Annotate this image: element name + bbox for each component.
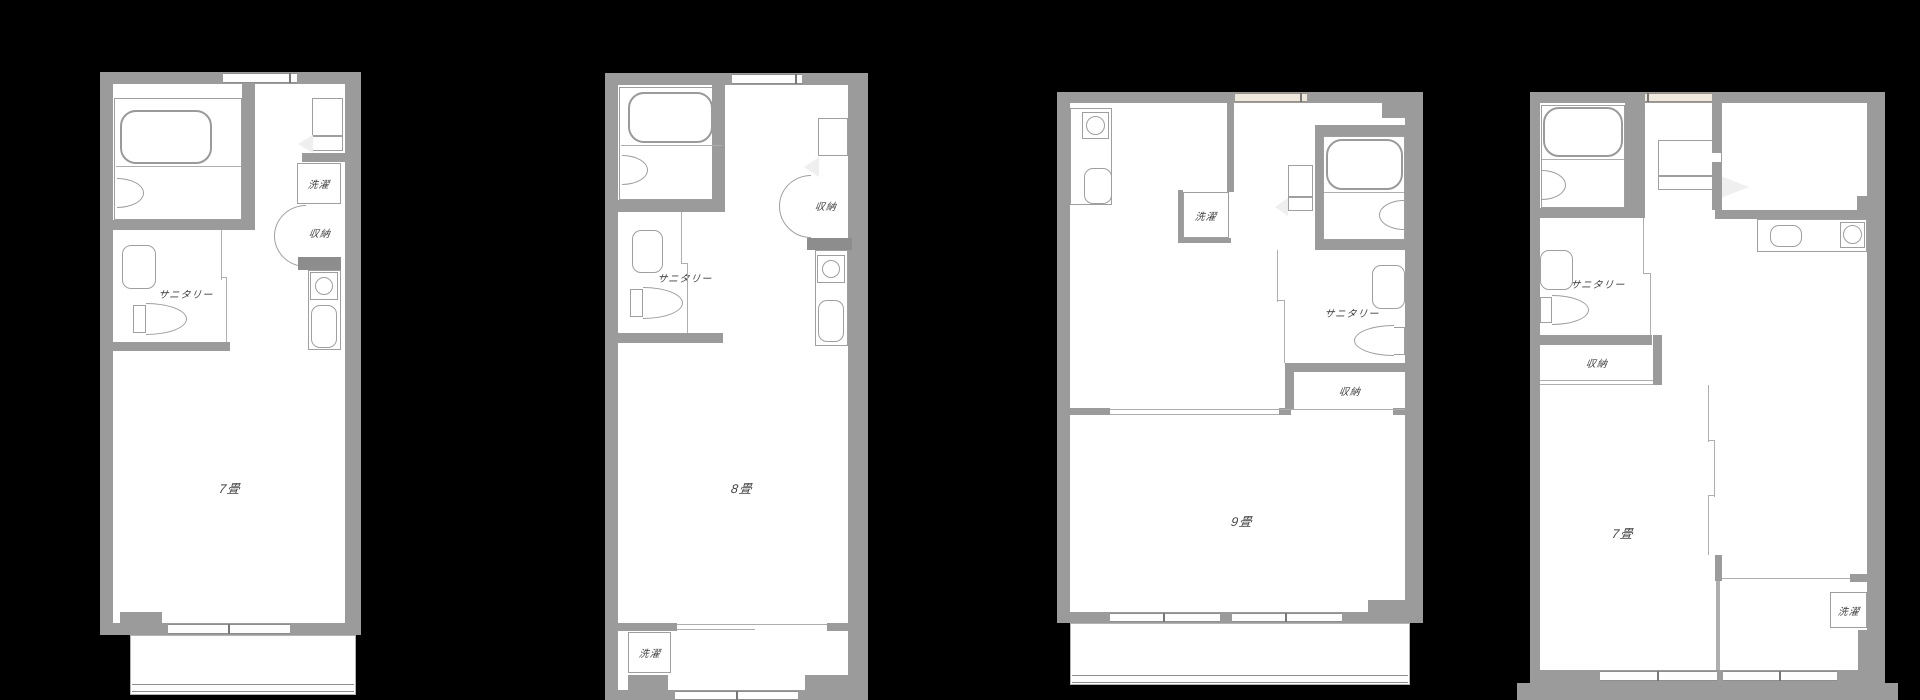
entrance-closet <box>1288 197 1313 211</box>
bathtub <box>1326 139 1403 190</box>
wall <box>1712 162 1722 210</box>
toilet-tank <box>133 305 146 333</box>
sanitary-label: サニタリー <box>127 286 245 301</box>
sanitary-label: サニタリー <box>626 270 744 285</box>
floorplan-3: 洗濯 サニタリー 収納 9畳 <box>1057 92 1423 687</box>
kitchen-sink <box>1770 225 1802 247</box>
sliding-door-track <box>1708 440 1715 441</box>
wall-corner-block <box>1857 196 1867 219</box>
sliding-door-track <box>1277 250 1278 302</box>
sliding-door-track <box>226 277 227 342</box>
window-break-mark <box>1657 671 1659 681</box>
entrance-closet <box>312 136 343 151</box>
wall <box>1070 408 1110 415</box>
wall-step <box>1858 630 1867 670</box>
wall-thin <box>1716 581 1720 670</box>
wall <box>1405 92 1423 623</box>
bathroom-divider <box>621 145 722 146</box>
wall <box>1315 125 1405 136</box>
balcony-slab <box>1517 683 1898 700</box>
room-size-label: 8畳 <box>691 478 794 497</box>
wall-step <box>628 675 668 690</box>
entrance-closet <box>312 98 343 136</box>
kitchen-sink <box>311 305 337 348</box>
wall <box>1057 92 1070 623</box>
wall <box>1285 372 1294 410</box>
window-break-mark <box>1285 613 1287 622</box>
wall <box>1530 92 1540 683</box>
wall-step <box>805 675 850 690</box>
sliding-door-track <box>1650 273 1651 335</box>
wall <box>1227 103 1234 192</box>
sliding-door-track <box>1540 380 1653 381</box>
sliding-door-track <box>1110 409 1405 410</box>
kitchen-sink <box>818 300 844 342</box>
sliding-door-track <box>1643 273 1651 274</box>
bathtub <box>628 92 713 143</box>
window-break-mark <box>1779 671 1781 681</box>
wall <box>113 342 230 351</box>
window <box>732 74 802 84</box>
floorplan-1: サニタリー 洗濯 収納 7畳 <box>100 72 361 700</box>
bathtub <box>1543 107 1623 157</box>
burner-icon <box>1843 225 1862 244</box>
sliding-door-track <box>1708 495 1715 496</box>
wall <box>618 623 677 631</box>
sliding-door-track <box>677 624 827 625</box>
toilet-tank <box>1393 327 1405 355</box>
bathtub <box>120 110 212 164</box>
wall <box>618 200 725 212</box>
entrance-closet <box>1288 165 1313 197</box>
entrance-door <box>818 118 848 156</box>
room-size-label: 7畳 <box>179 478 282 497</box>
sliding-door-track <box>1708 385 1709 442</box>
kitchen-sink <box>1084 168 1112 204</box>
burner-icon <box>315 277 333 295</box>
window-break-mark <box>736 691 738 700</box>
laundry-box: 洗濯 <box>628 632 671 673</box>
wall-step <box>302 153 361 162</box>
wall <box>1653 335 1662 385</box>
wall <box>712 85 725 212</box>
storage-label: 収納 <box>1317 383 1383 398</box>
balcony-rail <box>1072 675 1408 683</box>
window <box>1232 613 1342 622</box>
laundry-label: 洗濯 <box>1194 208 1218 223</box>
wall <box>113 220 255 230</box>
laundry-box: 洗濯 <box>1183 192 1229 238</box>
sanitary-label: サニタリー <box>1293 305 1411 320</box>
window <box>1110 613 1220 622</box>
wall <box>827 623 858 631</box>
laundry-label: 洗濯 <box>1836 603 1860 618</box>
wall <box>848 73 868 700</box>
storage-label: 収納 <box>1564 355 1630 370</box>
washbasin <box>1372 265 1405 309</box>
wall <box>1712 103 1722 153</box>
wall <box>1530 335 1652 345</box>
window <box>223 73 297 83</box>
balcony-rail <box>132 684 354 692</box>
sliding-door-track <box>1714 440 1715 497</box>
laundry-label: 洗濯 <box>307 176 331 191</box>
floorplan-2: サニタリー 収納 8畳 洗濯 <box>605 73 868 700</box>
sliding-door-track <box>1277 300 1285 301</box>
room-size-label: 9畳 <box>1191 511 1294 530</box>
window-break-mark <box>795 74 797 84</box>
wall <box>1178 238 1231 243</box>
bathroom-divider <box>1324 192 1404 193</box>
storage-label: 収納 <box>793 198 859 213</box>
storage-label: 収納 <box>287 225 353 240</box>
wall <box>242 84 255 230</box>
wall <box>1850 574 1867 582</box>
floorplan-4: サニタリー 収納 7畳 洗濯 <box>1530 92 1885 700</box>
sliding-door-track <box>1643 218 1644 274</box>
wall <box>807 238 852 250</box>
sliding-door-track <box>221 277 227 278</box>
bathroom-divider <box>1542 159 1624 160</box>
wall <box>605 73 618 700</box>
wall <box>1540 208 1645 218</box>
wall <box>1867 92 1885 683</box>
window-break-mark <box>1300 93 1302 102</box>
wall <box>1285 363 1423 372</box>
sliding-door-track <box>687 263 688 333</box>
laundry-box: 洗濯 <box>297 163 341 204</box>
sliding-door-track <box>677 629 755 630</box>
window-break-mark <box>228 624 230 634</box>
bathroom-divider <box>116 166 241 167</box>
laundry-label: 洗濯 <box>637 645 661 660</box>
sliding-door-track <box>1540 384 1653 385</box>
sliding-door-track <box>221 230 222 280</box>
sliding-door-track <box>1284 300 1285 363</box>
washbasin <box>632 230 663 273</box>
wall <box>1715 555 1722 581</box>
entrance-door <box>1235 93 1307 102</box>
sliding-door-track <box>681 212 682 264</box>
entrance-door <box>1645 93 1712 102</box>
wall <box>1315 240 1405 250</box>
window-break-mark <box>1163 613 1165 622</box>
wall <box>618 333 723 343</box>
washbasin <box>122 245 156 289</box>
toilet-tank <box>630 289 643 317</box>
sliding-door-track <box>681 263 688 264</box>
wall-step <box>120 612 162 624</box>
window-break-mark <box>1647 93 1649 102</box>
sliding-door-track <box>1708 495 1709 555</box>
sliding-door-track <box>1110 414 1279 415</box>
window-break-mark <box>289 73 291 83</box>
burner-icon <box>822 260 840 278</box>
room-size-label: 7畳 <box>1572 523 1675 542</box>
burner-icon <box>1086 116 1105 135</box>
sanitary-label: サニタリー <box>1539 276 1657 291</box>
wall <box>298 257 341 270</box>
wall <box>1625 103 1645 210</box>
wall <box>100 72 113 635</box>
wall <box>1715 210 1867 219</box>
laundry-box: 洗濯 <box>1830 592 1867 628</box>
wall-step <box>1368 600 1410 612</box>
sliding-door-track <box>1722 578 1867 579</box>
toilet-tank <box>1540 297 1552 323</box>
